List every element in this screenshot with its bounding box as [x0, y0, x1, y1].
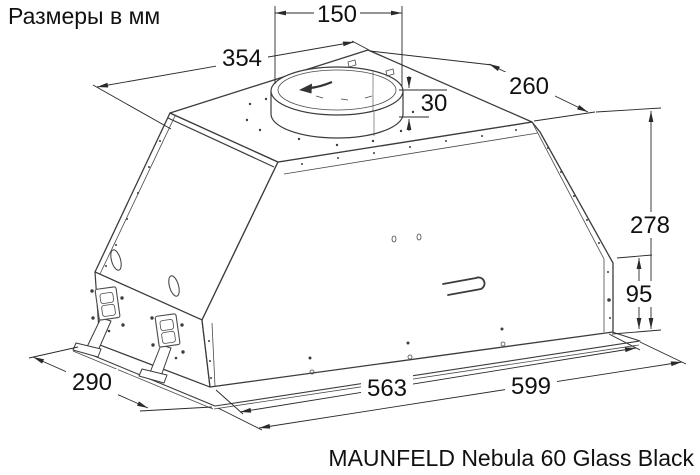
hood-dimension-drawing: 150 354 260 30 278	[0, 0, 700, 475]
dim-top-depth-label: 260	[509, 73, 549, 100]
dim-lower-height: 95	[617, 255, 656, 329]
dim-duct-width-label: 150	[317, 1, 357, 28]
hood-body	[73, 50, 640, 409]
dim-flange-depth-label: 290	[72, 369, 112, 396]
dim-top-length-label: 354	[222, 45, 262, 72]
technical-drawing-page: 150 354 260 30 278	[0, 0, 700, 475]
product-caption: MAUNFELD Nebula 60 Glass Black	[328, 445, 694, 471]
dim-flange-width-label: 599	[511, 373, 551, 400]
dim-total-height-label: 278	[630, 212, 670, 239]
dim-body-width-label: 563	[367, 375, 407, 402]
dim-lower-height-label: 95	[626, 281, 653, 308]
dim-collar-height-label: 30	[421, 90, 448, 117]
drawing-title: Размеры в мм	[8, 3, 160, 29]
